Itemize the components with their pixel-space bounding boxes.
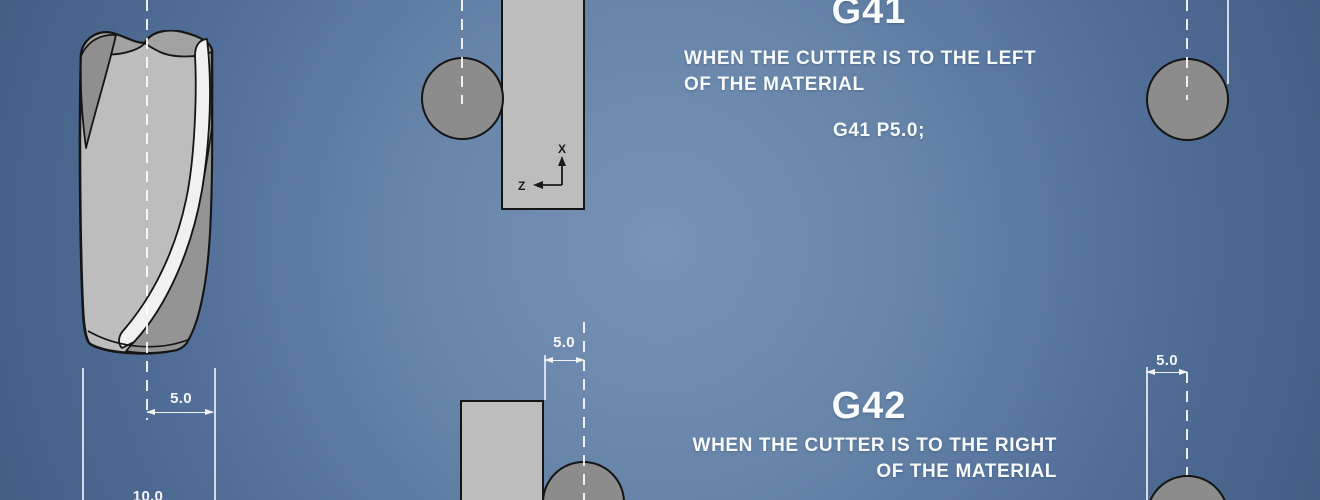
axis-z-label: Z [518,179,525,192]
drill-extension-line-right [214,368,216,500]
drill-extension-line-left [82,368,84,500]
axis-x-arrowhead-icon [558,156,566,166]
g42-description-line1: WHEN THE CUTTER IS TO THE RIGHT [693,433,1057,459]
axis-z-arrowhead-icon [533,181,543,189]
g42-right-offset-label: 5.0 [1145,353,1189,368]
g41-title: G41 [774,0,964,30]
g42-right-cutter-circle [1146,475,1229,500]
axis-x-label: X [558,142,566,156]
g42-mid-offset-arrow [545,360,584,361]
drill-centerline [146,0,148,420]
g42-description-line2: OF THE MATERIAL [693,459,1057,485]
g41-code-sample: G41 P5.0; [833,121,925,141]
g41-description-line1: WHEN THE CUTTER IS TO THE LEFT [684,46,1036,72]
g42-title: G42 [774,387,964,425]
g42-mid-extension-line [544,355,546,400]
g42-right-extension-line [1146,367,1148,500]
g42-mid-offset-label: 5.0 [542,335,586,350]
drill-diameter-label: 10.0 [126,489,170,500]
g41-right-cutter-circle [1146,58,1229,141]
g42-cutter-centerline [583,322,585,500]
g42-description: WHEN THE CUTTER IS TO THE RIGHT OF THE M… [693,433,1057,484]
g41-cutter-centerline [461,0,463,104]
drill-radius-label: 5.0 [159,391,203,406]
gcode-infographic: 5.0 10.0 X Z G41 WHEN THE CUTTER IS TO T… [0,0,1320,500]
axis-indicator: X Z [512,142,572,192]
g42-material-block [460,400,544,500]
g41-right-cutter-centerline [1186,0,1188,100]
g41-description-line2: OF THE MATERIAL [684,72,1036,98]
g41-description: WHEN THE CUTTER IS TO THE LEFT OF THE MA… [684,46,1036,97]
arrowhead-left-icon [146,409,155,415]
drill-radius-arrow [147,412,213,413]
g42-right-offset-arrow [1147,372,1187,373]
arrowhead-right-icon [205,409,214,415]
g41-right-material-edge-line [1227,0,1229,84]
